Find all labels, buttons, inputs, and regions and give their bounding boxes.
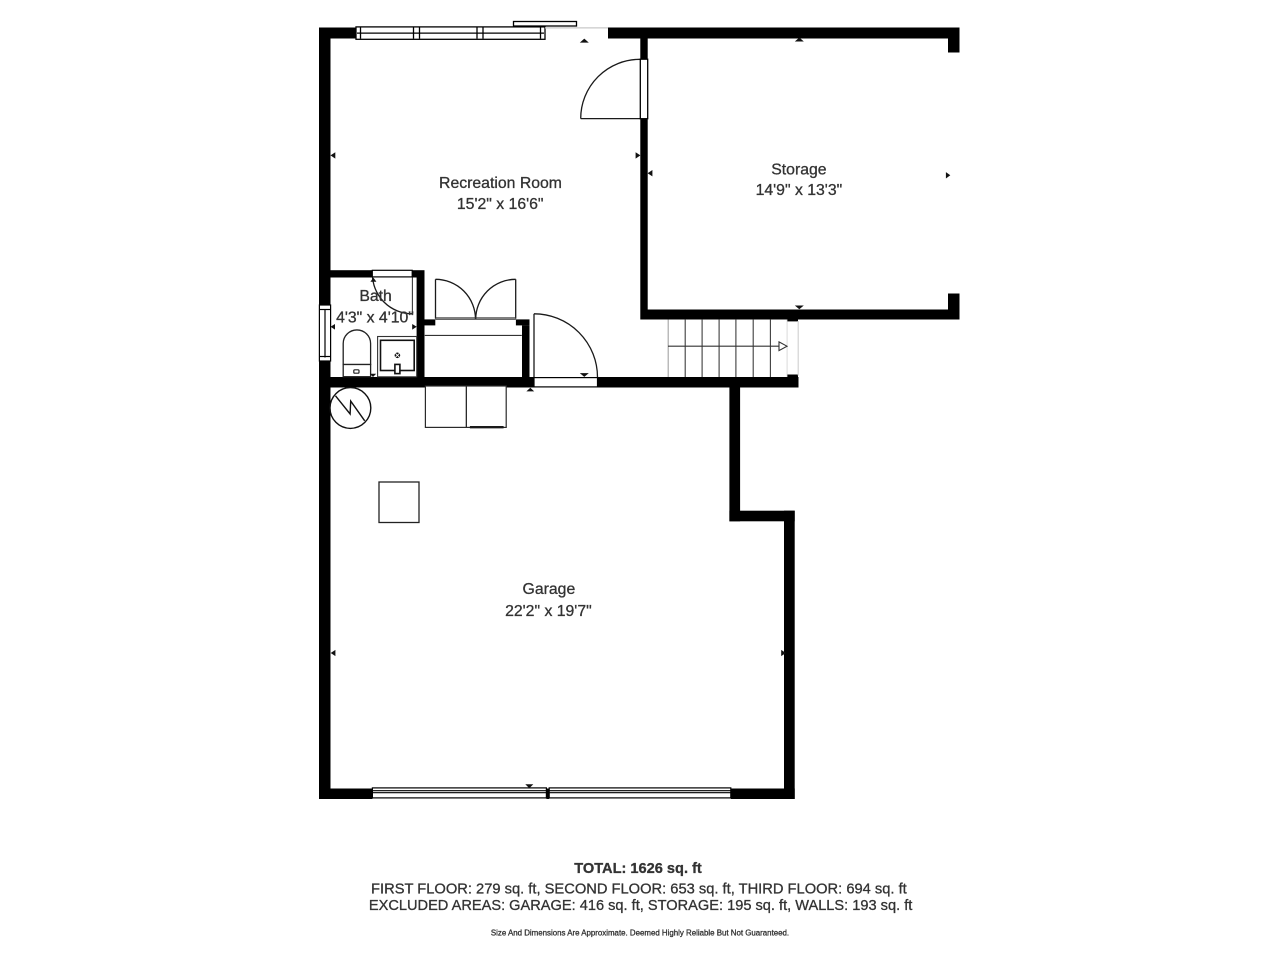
svg-text:Recreation Room: Recreation Room	[439, 175, 562, 192]
svg-text:Bath: Bath	[359, 288, 392, 305]
svg-text:TOTAL: 1626 sq. ft: TOTAL: 1626 sq. ft	[574, 861, 702, 877]
svg-text:14'9" x 13'3": 14'9" x 13'3"	[756, 182, 843, 199]
svg-text:Garage: Garage	[523, 581, 576, 598]
svg-text:Storage: Storage	[771, 161, 827, 178]
svg-text:4'3" x 4'10": 4'3" x 4'10"	[336, 309, 414, 326]
svg-text:22'2" x 19'7": 22'2" x 19'7"	[505, 603, 592, 620]
svg-text:Size And Dimensions Are Approx: Size And Dimensions Are Approximate. Dee…	[491, 928, 789, 937]
svg-text:15'2" x 16'6": 15'2" x 16'6"	[457, 196, 544, 213]
svg-text:FIRST FLOOR: 279 sq. ft, SECON: FIRST FLOOR: 279 sq. ft, SECOND FLOOR: 6…	[371, 882, 907, 898]
svg-text:EXCLUDED AREAS: GARAGE: 416 sq: EXCLUDED AREAS: GARAGE: 416 sq. ft, STOR…	[369, 898, 912, 914]
